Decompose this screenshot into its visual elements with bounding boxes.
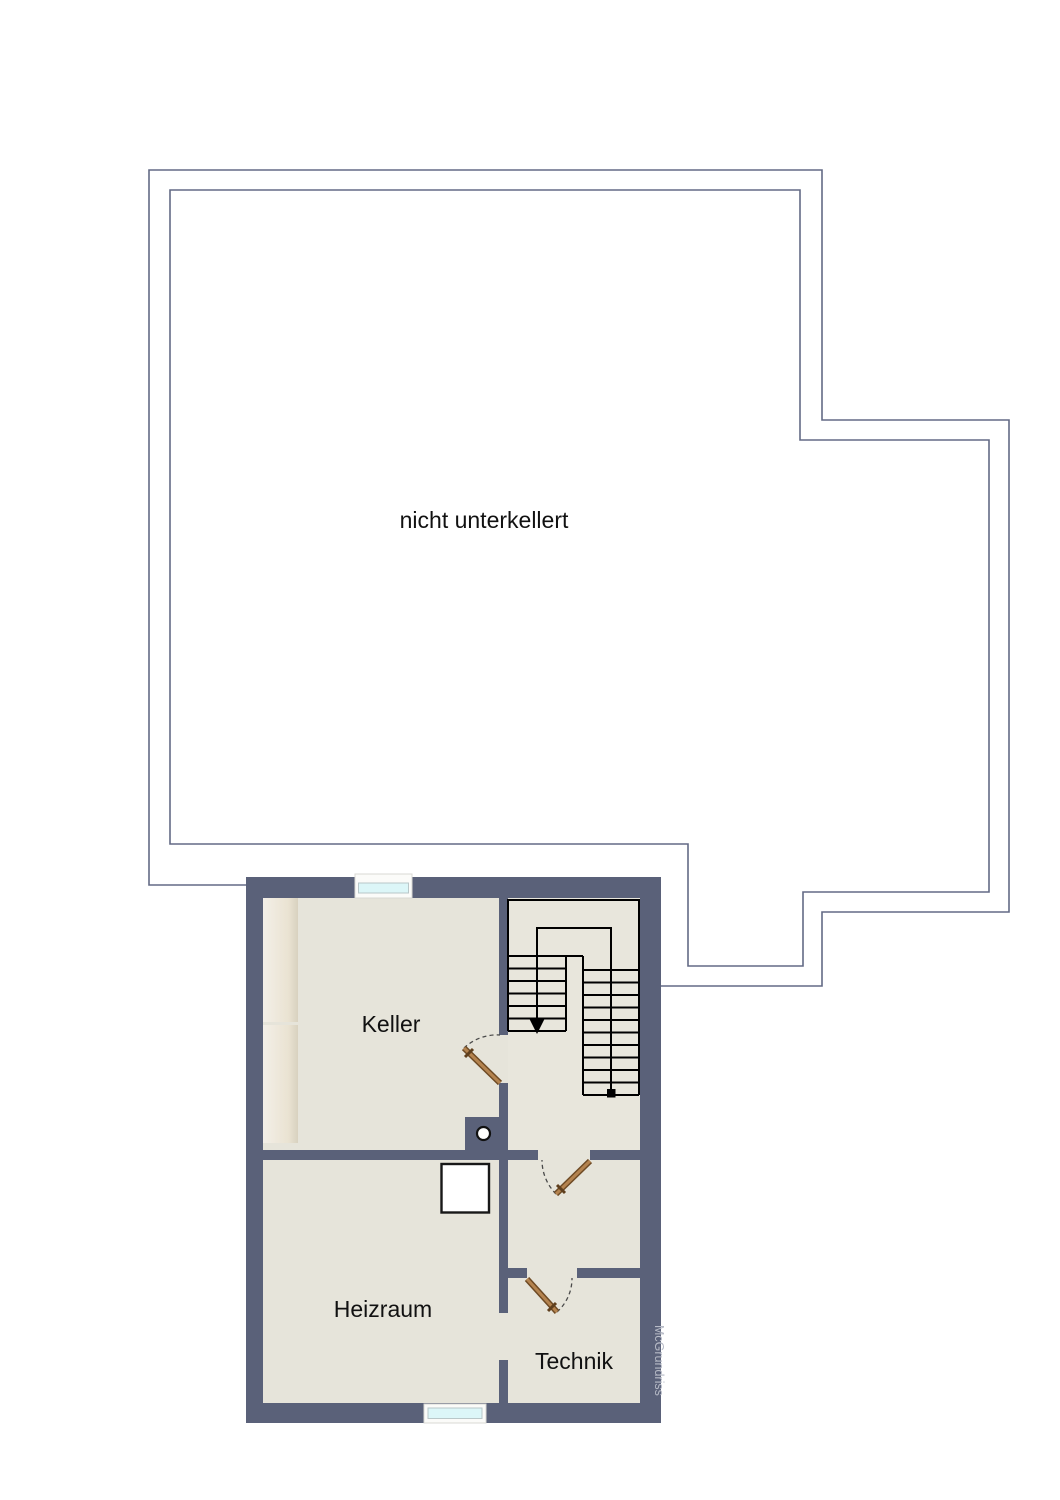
room-label-heizraum: Heizraum	[334, 1296, 432, 1322]
vent-circle-symbol	[477, 1127, 490, 1140]
keller-door-opening	[499, 1035, 508, 1083]
outline-outer	[149, 170, 1009, 986]
technik-floor	[508, 1278, 640, 1403]
room-label-keller: Keller	[362, 1011, 421, 1037]
hall-door-opening	[538, 1150, 590, 1160]
stair-walk-start-square	[607, 1089, 616, 1098]
basement-plan: Keller Heizraum Technik McGrundriss	[246, 874, 666, 1423]
outline-inner	[170, 190, 989, 966]
window-north	[355, 874, 412, 898]
ground-floor-outline	[149, 170, 1009, 986]
keller-wall-strip-upper	[263, 898, 298, 1022]
room-label-technik: Technik	[535, 1348, 613, 1374]
watermark-mcgrundriss: McGrundriss	[652, 1325, 666, 1396]
technik-door-opening	[527, 1268, 577, 1278]
window-north-glass	[359, 883, 409, 893]
window-south	[424, 1404, 486, 1423]
keller-wall-strip-lower	[263, 1025, 298, 1143]
annotation-nicht-unterkellert: nicht unterkellert	[400, 507, 569, 533]
heizraum-technik-opening	[499, 1313, 508, 1360]
stair-hall-floor	[508, 898, 640, 1150]
window-south-glass	[428, 1408, 482, 1419]
chimney-square	[442, 1164, 490, 1213]
floorplan-page: nicht unterkellert	[0, 0, 1060, 1500]
